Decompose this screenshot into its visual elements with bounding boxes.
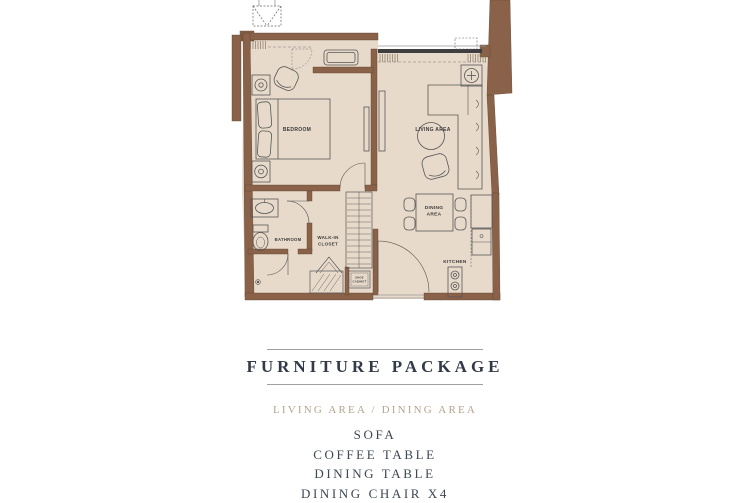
bathroom-label: BATHROOM <box>275 237 302 242</box>
divider-line-top <box>267 349 483 350</box>
package-item-coffee-table: COFFEE TABLE <box>0 445 750 465</box>
floor-plan-drawing: BEDROOM LIVING AREA DINING AREA KITCHEN … <box>228 0 515 305</box>
dining-area-label-2: AREA <box>427 212 442 218</box>
ac-unit <box>253 6 281 26</box>
floor-plan: BEDROOM LIVING AREA DINING AREA KITCHEN … <box>228 0 515 305</box>
package-area-subtitle: LIVING AREA / DINING AREA <box>0 404 750 416</box>
shoe-cabinet <box>349 271 370 288</box>
shoe-cabinet-label-1: SHOE <box>355 276 364 280</box>
living-area-label: LIVING AREA <box>415 127 450 133</box>
package-item-dining-chair: DINING CHAIR X4 <box>0 484 750 503</box>
package-item-list: SOFA COFFEE TABLE DINING TABLE DINING CH… <box>0 425 750 503</box>
furniture-package-title: FURNITURE PACKAGE <box>0 357 750 377</box>
shoe-cabinet-label-2: CABINET <box>352 280 366 284</box>
sliding-door <box>378 49 482 53</box>
furniture-package-section: FURNITURE PACKAGE LIVING AREA / DINING A… <box>0 349 750 503</box>
package-item-sofa: SOFA <box>0 425 750 445</box>
ac-unit-2 <box>455 38 477 49</box>
divider-line-bottom <box>267 384 483 385</box>
kitchen-label: KITCHEN <box>443 259 467 265</box>
walkin-closet-label-2: CLOSET <box>318 242 338 247</box>
bedroom-label: BEDROOM <box>283 127 311 133</box>
package-item-dining-table: DINING TABLE <box>0 464 750 484</box>
walkin-closet-label-1: WALK-IN <box>317 235 338 240</box>
dining-area-label-1: DINING <box>425 205 444 211</box>
